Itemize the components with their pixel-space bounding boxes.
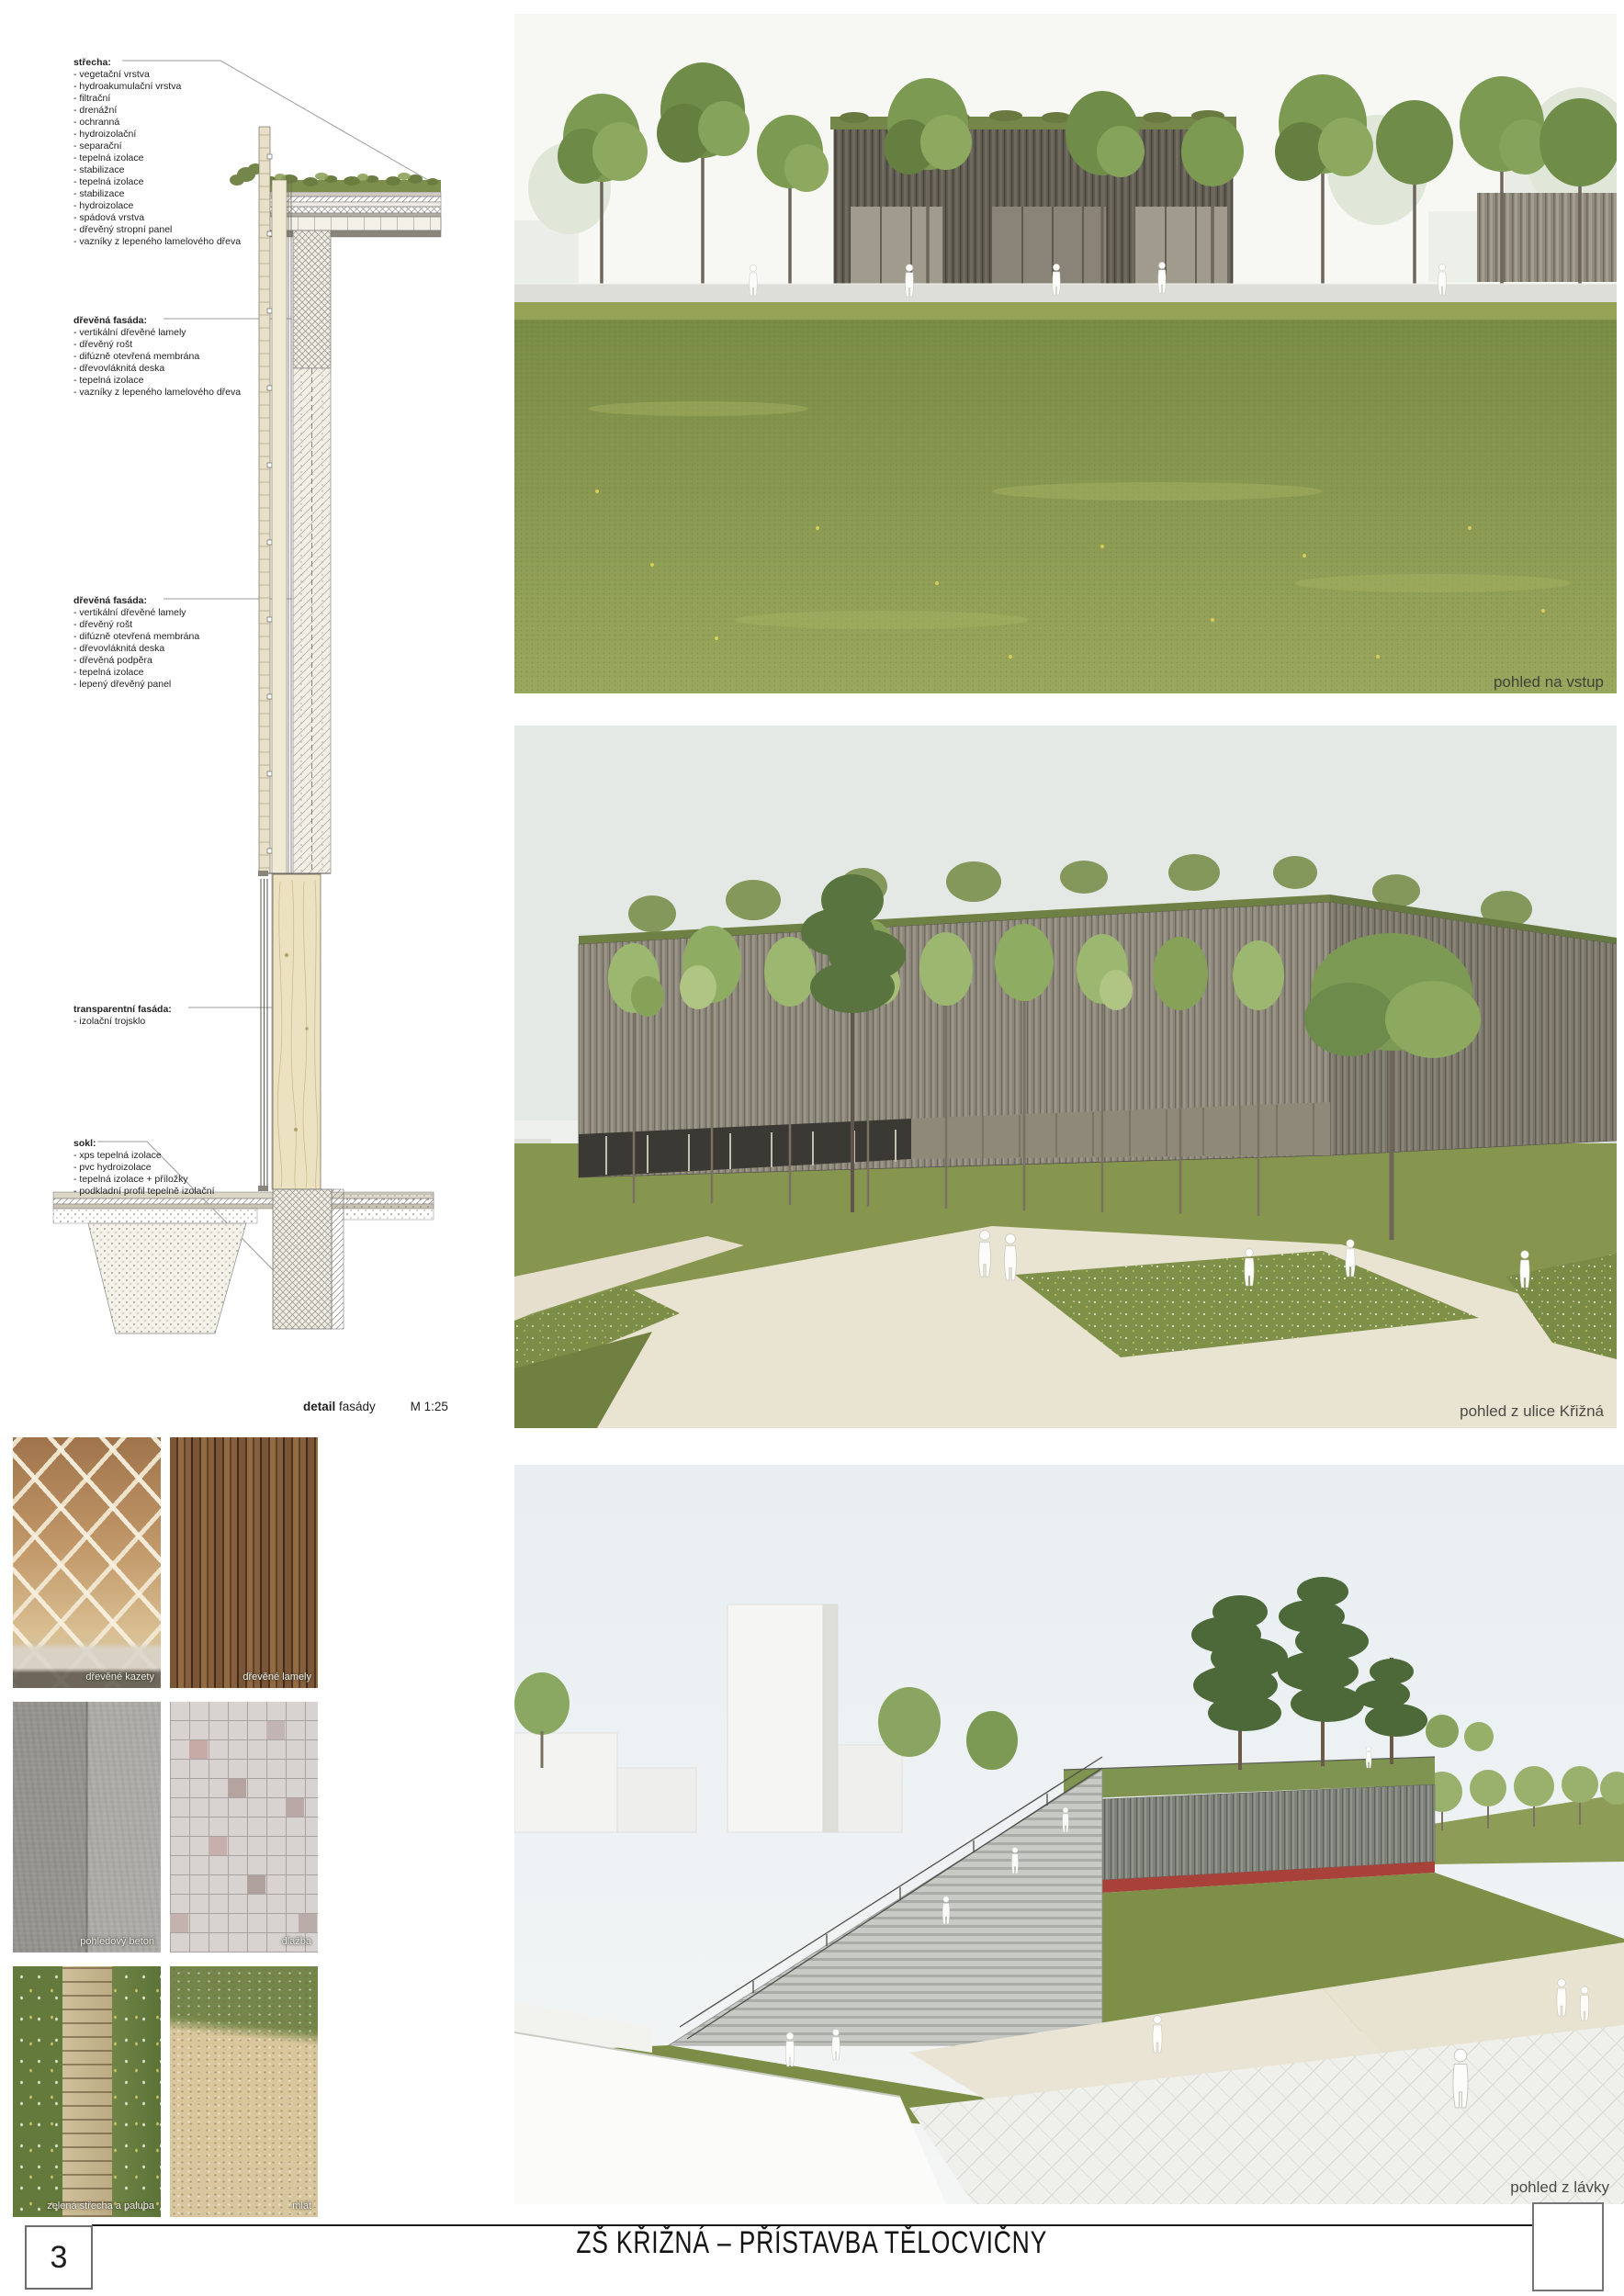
material-tile-mlat: mlat — [170, 1966, 318, 2217]
detail-caption: detail fasády M 1:25 — [303, 1400, 448, 1413]
detail-caption-bold: detail — [303, 1400, 335, 1413]
material-tile-zelena-strecha: zelená střecha a paluba — [13, 1966, 161, 2217]
stamp-box — [1532, 2202, 1604, 2291]
material-label: zelená střecha a paluba — [47, 2200, 154, 2212]
rendering-caption: pohled z ulice Křižná — [1460, 1402, 1604, 1420]
annotation-sokl: sokl: - xps tepelná izolace - pvc hydroi… — [73, 1138, 215, 1198]
material-label: pohledový beton — [80, 1936, 154, 1947]
foundation — [53, 1189, 434, 1334]
annotation-strecha: střecha: - vegetační vrstva - hydroakumu… — [73, 57, 241, 248]
annotation-drevena-fasada-1: dřevěná fasáda: - vertikální dřevěné lam… — [73, 315, 241, 399]
material-label: dřevěné lamely — [242, 1671, 311, 1683]
rendering-caption: pohled z lávky — [1510, 2178, 1609, 2196]
material-label: dřevěné kazety — [85, 1671, 154, 1683]
material-tile-dlazba: dlažba — [170, 1702, 318, 1953]
detail-caption-normal: fasády — [339, 1400, 376, 1413]
wall-section — [258, 127, 331, 1191]
presentation-board: střecha: - vegetační vrstva - hydroakumu… — [0, 0, 1624, 2296]
material-tile-drevene-kazety: dřevěné kazety — [13, 1437, 161, 1688]
material-label: mlat — [292, 2200, 311, 2212]
material-label: dlažba — [282, 1936, 311, 1947]
rendering-pohled-na-vstup: pohled na vstup — [514, 14, 1617, 693]
detail-caption-scale: M 1:25 — [411, 1400, 448, 1413]
material-tile-drevene-lamely: dřevěné lamely — [170, 1437, 318, 1688]
material-tile-pohledovy-beton: pohledový beton — [13, 1702, 161, 1953]
rendering-pohled-z-ulice: pohled z ulice Křižná — [514, 726, 1617, 1428]
page-title: ZŠ KŘIŽNÁ – PŘÍSTAVBA TĚLOCVIČNY — [0, 2225, 1624, 2261]
rendering-pohled-z-lavky: pohled z lávky — [514, 1465, 1624, 2204]
annotation-drevena-fasada-2: dřevěná fasáda: - vertikální dřevěné lam… — [73, 595, 199, 691]
annotation-transparentni-fasada: transparentní fasáda: - izolační trojskl… — [73, 1004, 172, 1028]
rendering-caption: pohled na vstup — [1494, 673, 1604, 691]
